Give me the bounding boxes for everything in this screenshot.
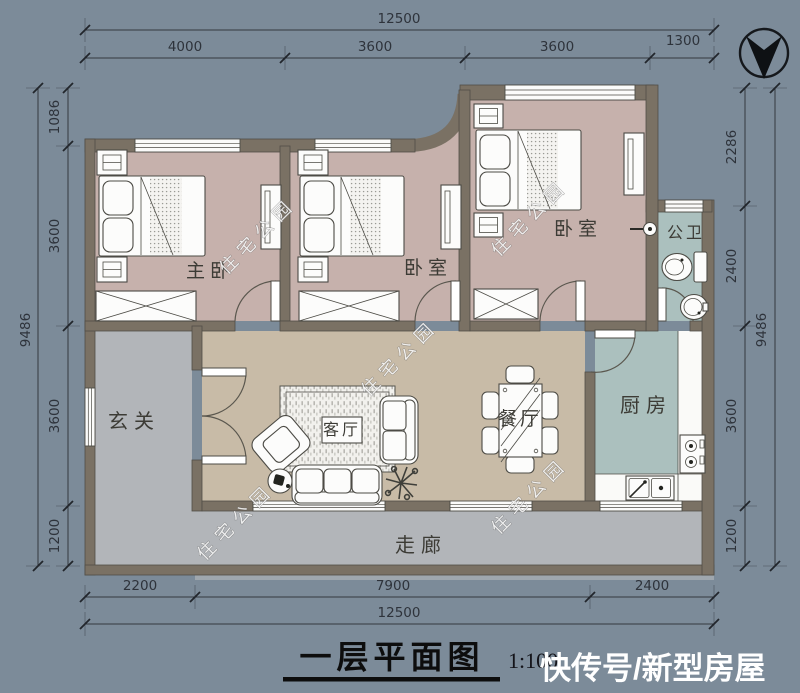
bedroom3-bathroom-wall (646, 85, 658, 331)
floor-plan-drawing: 主卧 卧室 卧室 公卫 玄关 客厅 餐厅 厨房 走廊 12500 4000 36… (0, 0, 800, 693)
dim-label: 12500 (378, 605, 421, 621)
dim-label: 7900 (376, 578, 410, 594)
dining-chair (482, 392, 499, 419)
dim-label: 2286 (724, 130, 740, 164)
dim-label: 9486 (18, 313, 34, 347)
pillow (103, 218, 133, 252)
entry-window (85, 388, 95, 446)
south-wall (85, 565, 714, 575)
dim-label: 3600 (540, 39, 574, 55)
veranda-wall-b (385, 501, 450, 511)
bathroom-window (665, 200, 703, 212)
dim-label: 1300 (666, 33, 700, 49)
pillow (480, 135, 510, 169)
title-underline (283, 677, 500, 682)
dining-chair (506, 456, 534, 473)
room-label-kitchen: 厨房 (620, 394, 672, 417)
west-wall (85, 139, 95, 575)
dining-chair (506, 366, 534, 383)
loveseat (380, 396, 418, 464)
veranda-wall-d (682, 501, 702, 511)
entry-wall-lower (192, 460, 202, 511)
room-label-corridor: 走廊 (395, 534, 447, 557)
dim-label: 12500 (378, 11, 421, 27)
bathroom-sink-icon (681, 295, 709, 320)
bedroom3-window (505, 85, 635, 100)
bed-blanket (350, 178, 381, 255)
sofa (292, 465, 382, 505)
bedroom-row-wall-b (280, 321, 415, 331)
dining-chair (482, 427, 499, 454)
kitchen-window (600, 501, 682, 511)
toilet-icon (662, 252, 707, 282)
corridor-floor (192, 511, 702, 565)
kitchen-west-wall (585, 372, 595, 501)
bedroom3-dresser (624, 133, 644, 195)
dim-label: 1200 (47, 519, 63, 553)
dim-label: 3600 (47, 399, 63, 433)
dim-label: 9486 (754, 313, 770, 347)
room-label-entry: 玄关 (108, 410, 160, 433)
pillow (304, 218, 334, 252)
pillow (480, 172, 510, 206)
dim-label: 4000 (168, 39, 202, 55)
dim-label: 3600 (724, 399, 740, 433)
room-label-bedroom2: 卧室 (404, 257, 452, 279)
pillow (304, 181, 334, 215)
dim-label: 1200 (724, 519, 740, 553)
room-label-dining-room: 餐厅 (498, 408, 542, 430)
master-bedroom-window (135, 139, 240, 152)
floor-plan-page: 主卧 卧室 卧室 公卫 玄关 客厅 餐厅 厨房 走廊 12500 4000 36… (0, 0, 800, 693)
room-label-living-room: 客厅 (323, 421, 361, 439)
dining-chair (541, 392, 558, 419)
entry-wall-upper (192, 326, 202, 370)
bed-blanket (150, 178, 182, 255)
bedroom-row-wall-e (690, 321, 702, 331)
dining-chair (541, 427, 558, 454)
pillow (103, 181, 133, 215)
bedroom-row-wall-a (85, 321, 235, 331)
dim-label: 3600 (358, 39, 392, 55)
room-label-bedroom3: 卧室 (554, 218, 602, 240)
drawing-title: 一层平面图 (299, 639, 484, 675)
stove-icon (680, 435, 705, 473)
entry-floor (95, 331, 192, 565)
bedroom2-dresser (441, 185, 461, 249)
dim-label: 3600 (47, 219, 63, 253)
dim-label: 2400 (635, 578, 669, 594)
room-label-bathroom: 公卫 (667, 225, 705, 242)
dim-label: 2400 (724, 249, 740, 283)
brand-watermark: 快传号/新型房屋 (540, 651, 766, 686)
kitchen-sink-icon (626, 476, 674, 500)
dim-label: 1086 (47, 100, 63, 134)
bedroom-row-wall-c (470, 321, 540, 331)
dim-label: 2200 (123, 578, 157, 594)
veranda-wall-c (532, 501, 600, 511)
